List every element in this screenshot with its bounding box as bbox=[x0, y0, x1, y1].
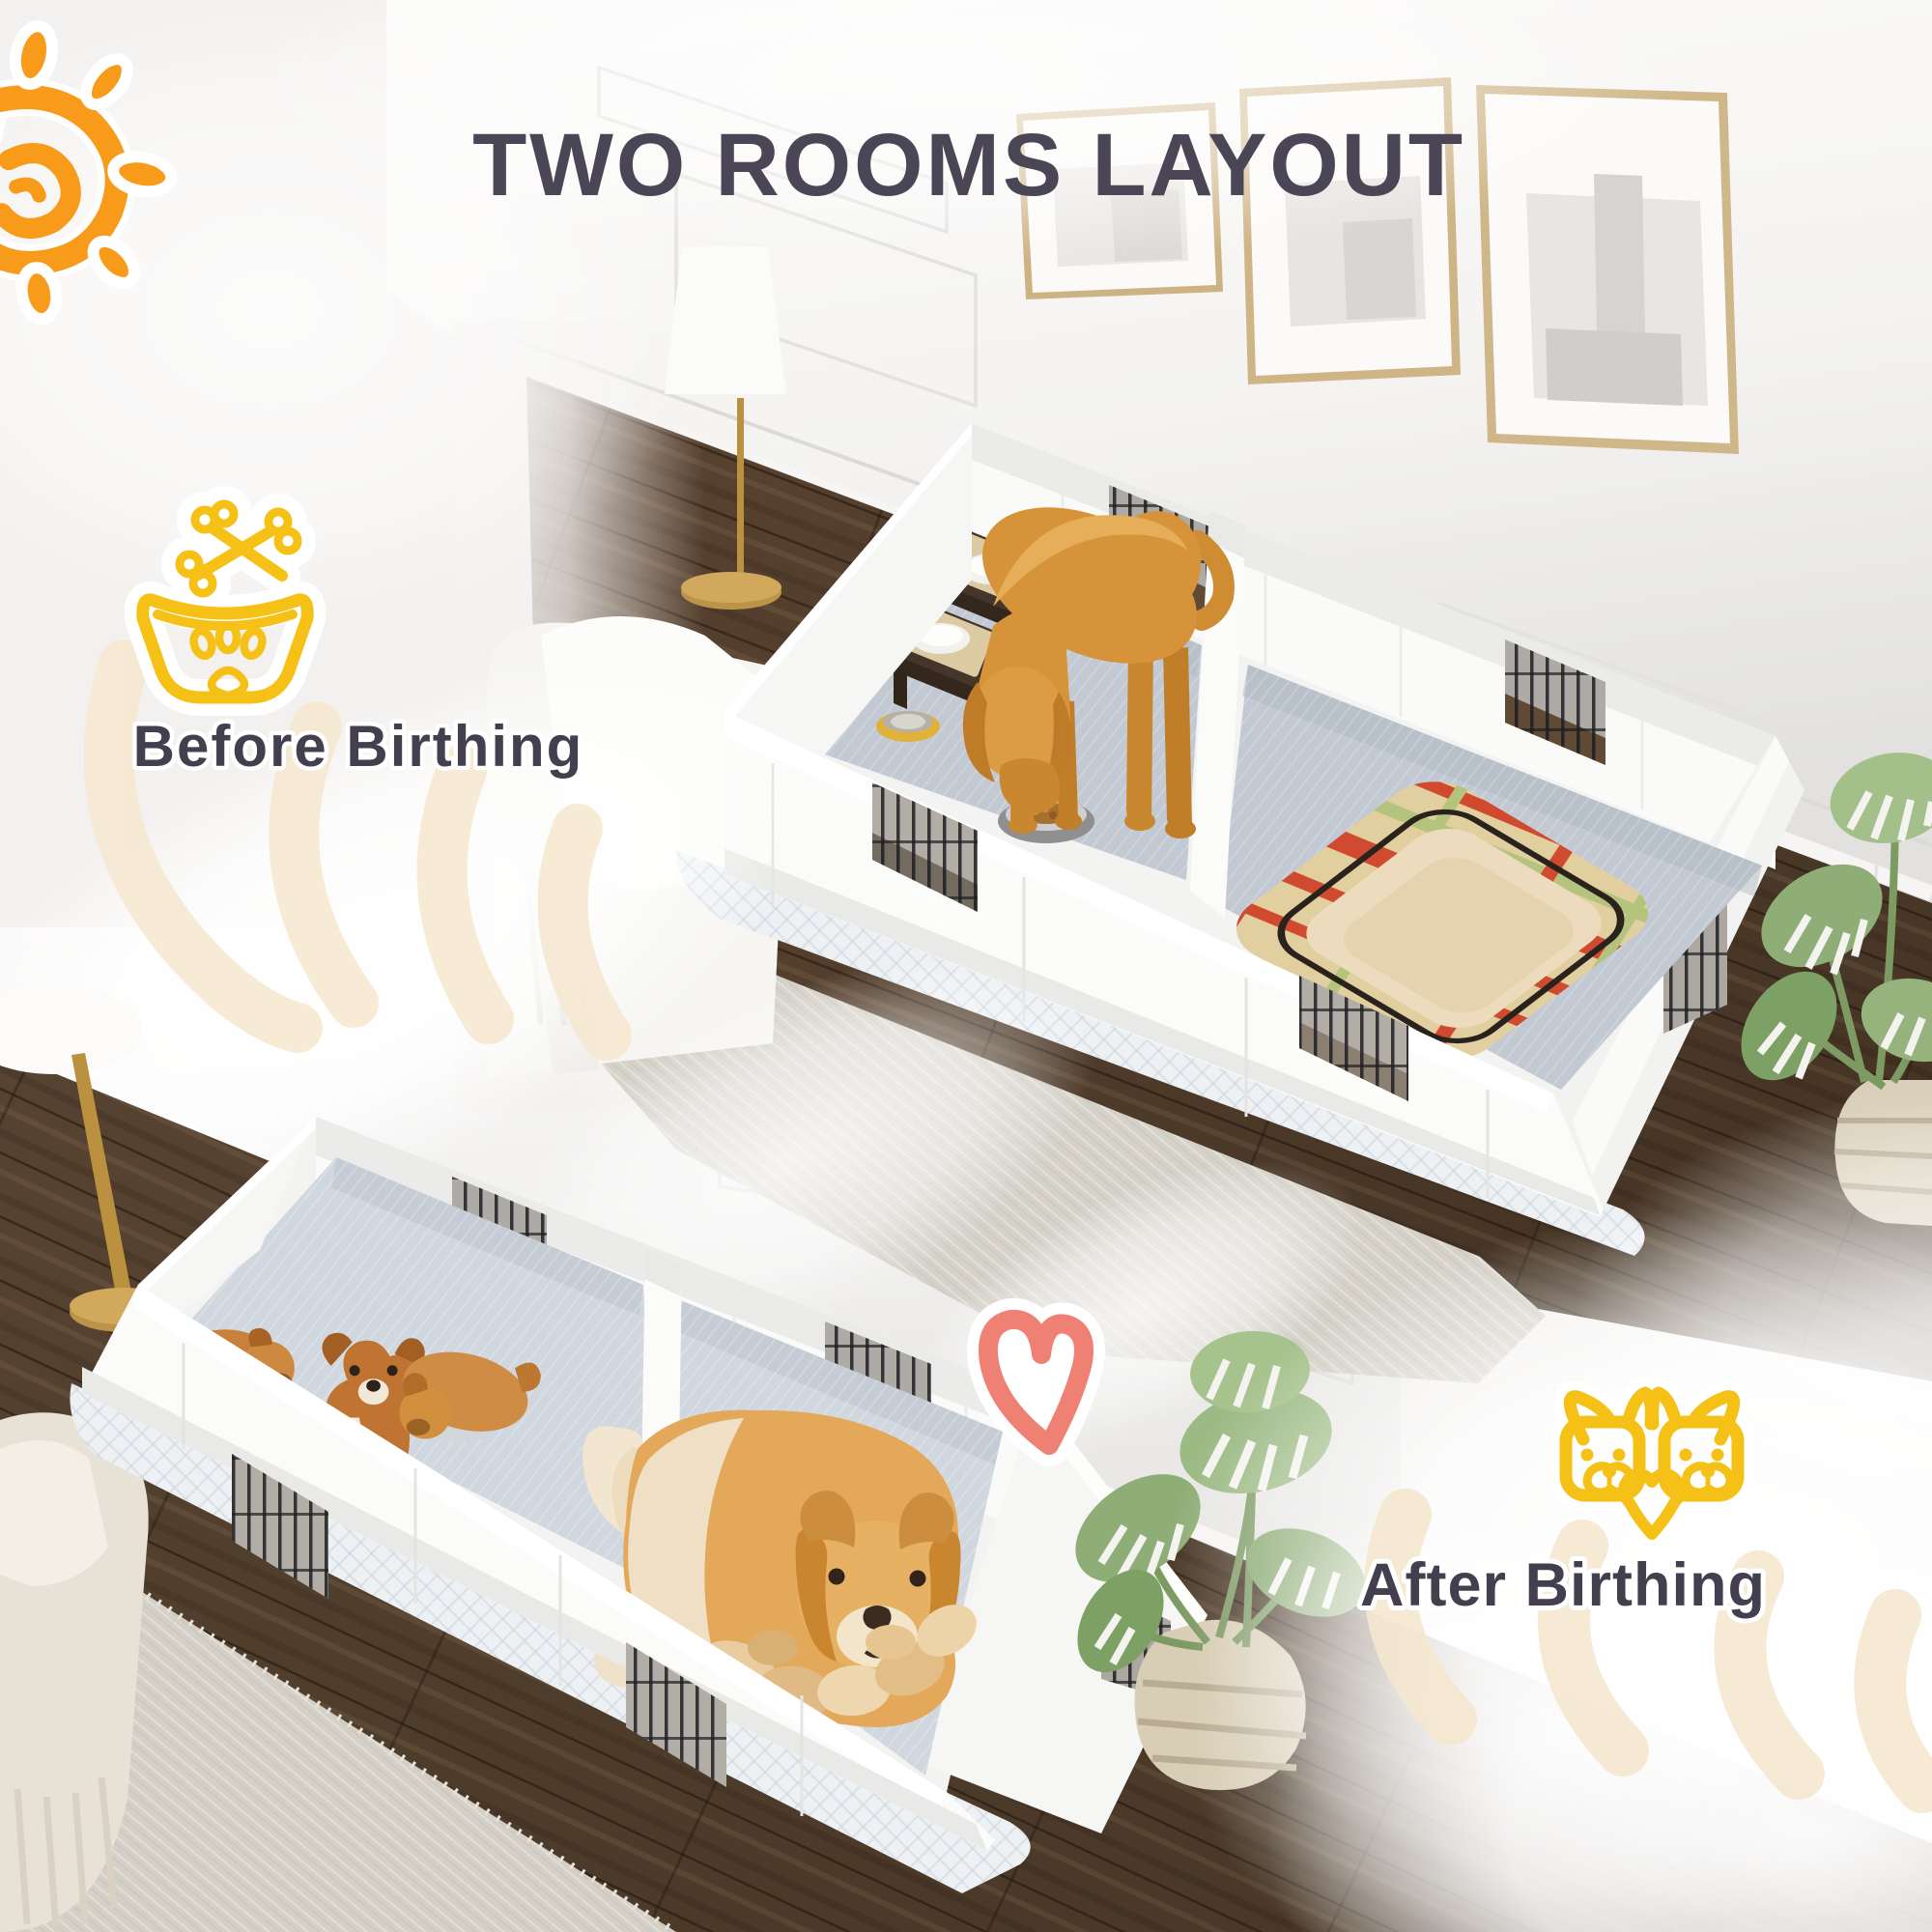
svg-text:After Birthing: After Birthing bbox=[1360, 1551, 1766, 1619]
svg-text:TWO ROOMS LAYOUT: TWO ROOMS LAYOUT bbox=[472, 116, 1465, 214]
svg-text:Before Birthing: Before Birthing bbox=[133, 714, 584, 779]
